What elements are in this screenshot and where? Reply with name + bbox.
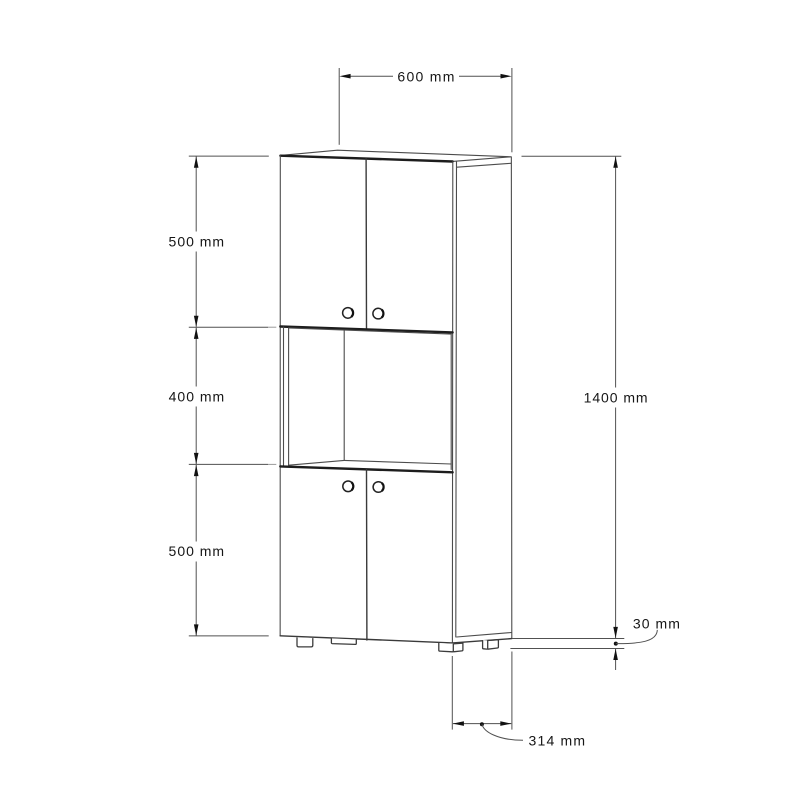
svg-text:400 mm: 400 mm — [169, 389, 225, 405]
svg-text:1400 mm: 1400 mm — [584, 390, 648, 406]
svg-text:600 mm: 600 mm — [397, 69, 454, 85]
svg-text:30 mm: 30 mm — [633, 615, 680, 631]
svg-text:500 mm: 500 mm — [169, 543, 225, 559]
svg-text:314 mm: 314 mm — [529, 733, 586, 749]
svg-text:500 mm: 500 mm — [169, 234, 225, 250]
